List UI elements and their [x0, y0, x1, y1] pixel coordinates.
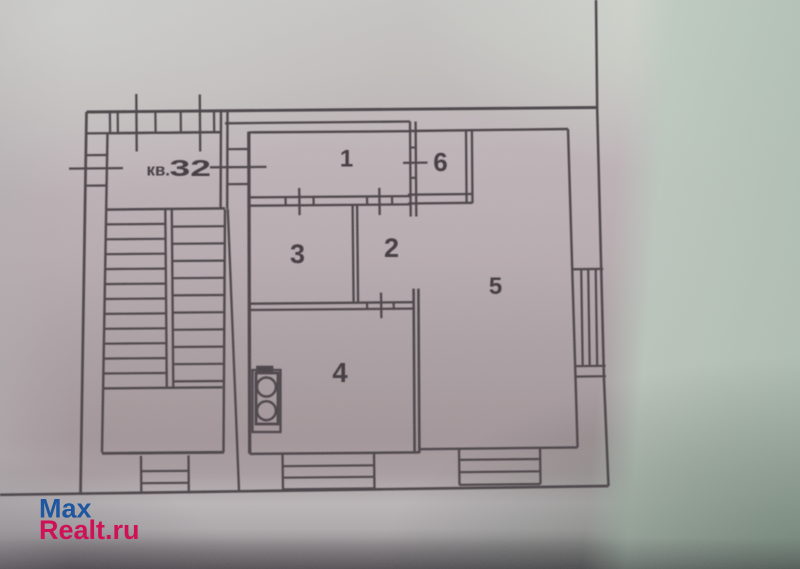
svg-text:Realt.ru: Realt.ru: [39, 515, 140, 545]
